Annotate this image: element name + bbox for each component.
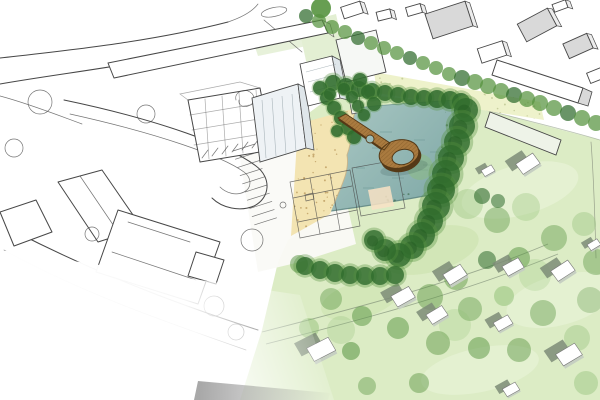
tree [364,36,378,50]
field-speckle [539,113,541,115]
field-speckle [379,77,381,79]
field-speckle [521,116,522,117]
sand-speckle [323,200,325,202]
field-speckle [504,104,506,106]
tree [507,338,531,362]
field-speckle [514,110,515,111]
sand-speckle [327,192,329,194]
sand-speckle [327,197,328,198]
sand-speckle [296,191,298,193]
tree [484,207,510,233]
tree [474,188,490,204]
sand-speckle [298,178,299,179]
sand-speckle [315,133,316,134]
sketch-house [477,40,511,66]
field-speckle [428,79,430,81]
sketch-house-roof [376,9,392,21]
field-speckle [440,82,441,83]
field-speckle [533,118,535,120]
sand-speckle [312,156,314,158]
tree [442,67,456,81]
sketch-house [563,32,598,62]
sketch-house [552,0,573,15]
tree [390,46,404,60]
sketch-house [587,65,600,86]
sand-speckle [334,149,336,151]
sketch-house-roof [425,1,473,39]
tree [324,88,336,100]
tree [320,288,342,310]
sketch-house-roof [341,1,364,19]
field-speckle [485,94,486,95]
sand-speckle [305,207,307,209]
sand-speckle [312,154,314,156]
tree [541,225,567,251]
marsh-speckle [394,199,396,201]
sand-speckle [312,172,313,173]
sand-speckle [300,207,302,209]
sand-speckle [325,166,327,168]
sketch-house [406,3,428,20]
tree [530,300,556,326]
tree [532,95,548,111]
tree [491,194,505,208]
sand-speckle [320,124,321,125]
sand-speckle [324,179,326,181]
sketch-house-roof [552,0,568,12]
tree [325,20,339,34]
tree [327,316,355,344]
masterplan-sketch-canvas [0,0,600,400]
sketch-house-roof [587,67,600,84]
tree [416,56,430,70]
pier-small-hole [366,135,374,143]
tree [386,266,404,284]
sand-speckle [307,213,309,215]
field-speckle [490,72,492,74]
sketch-house [341,0,368,22]
sand-speckle [323,210,324,211]
field-speckle [380,81,382,83]
field-speckle [525,89,526,90]
tree [387,317,409,339]
tree [468,337,490,359]
sand-speckle [325,192,327,194]
sand-speckle [304,192,306,194]
field-speckle [491,97,493,99]
field-speckle [527,115,528,116]
sand-speckle [336,153,337,154]
tree [358,377,376,395]
tree [409,373,429,393]
tree [560,105,576,121]
sand-speckle [331,204,333,206]
tree [494,286,514,306]
tree [377,41,391,55]
tree [311,0,331,18]
tree [352,306,372,326]
tree [299,9,313,23]
sketch-house-roof [563,33,593,58]
field-speckle [412,74,413,75]
tree-core [367,236,378,247]
sketch-house [425,0,478,42]
marsh-speckle [403,194,405,196]
field-speckle [485,73,486,74]
tree [367,97,381,111]
sand-speckle [315,161,316,162]
tree [342,342,360,360]
large-tree [311,0,331,18]
tree [358,109,370,121]
tree [478,251,496,269]
tree [338,25,352,39]
sand-speckle [313,189,314,190]
tree [574,110,590,126]
tree [574,371,598,395]
tree [546,100,562,116]
tree [331,125,343,137]
tree [403,51,417,65]
sand-speckle [316,202,318,204]
sand-speckle [316,149,317,150]
field-speckle [401,78,403,80]
tree [429,61,443,75]
sand-speckle [331,122,332,123]
sand-speckle [330,207,331,208]
sketch-house-roof [406,4,423,17]
sketch-house [376,8,396,24]
sand-speckle [308,155,310,157]
tree [351,31,365,45]
marsh-speckle [407,193,409,195]
tree [572,212,596,236]
field-speckle [497,108,499,110]
sketch-house-roof [477,41,506,63]
masterplan-illustration [0,0,600,400]
tree [512,193,540,221]
